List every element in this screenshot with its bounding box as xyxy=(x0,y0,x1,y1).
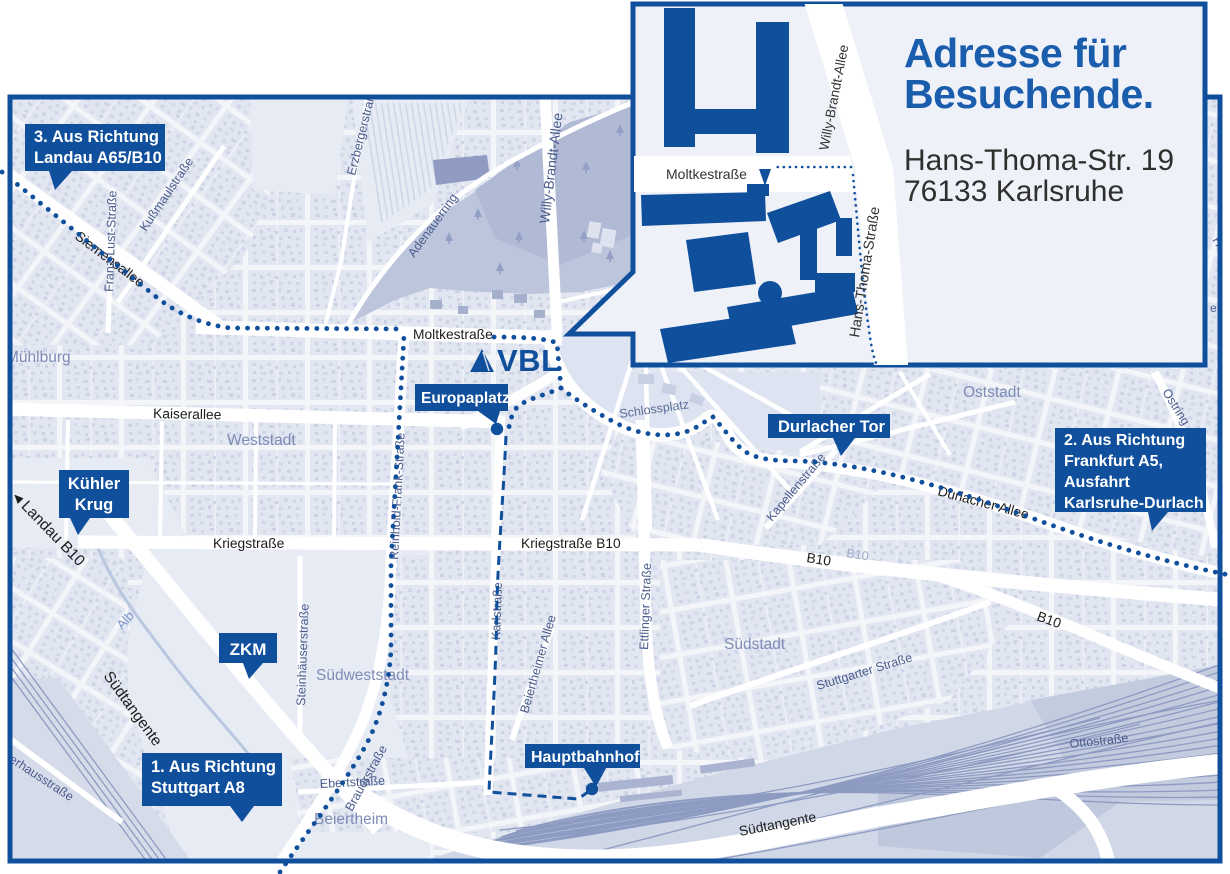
svg-text:Europaplatz: Europaplatz xyxy=(421,390,510,407)
svg-text:Weststadt: Weststadt xyxy=(227,432,296,449)
svg-text:Hauptbahnhof: Hauptbahnhof xyxy=(531,749,640,766)
svg-text:VBL: VBL xyxy=(497,343,561,378)
svg-text:Moltkestraße: Moltkestraße xyxy=(413,327,493,342)
svg-text:Mühlburg: Mühlburg xyxy=(6,349,71,366)
svg-text:ZKM: ZKM xyxy=(230,640,267,659)
svg-text:2. Aus Richtung: 2. Aus Richtung xyxy=(1064,432,1185,449)
svg-text:Moltkestraße: Moltkestraße xyxy=(666,166,747,182)
svg-text:1. Aus Richtung: 1. Aus Richtung xyxy=(151,758,276,776)
svg-text:Südstadt: Südstadt xyxy=(724,636,786,653)
svg-text:Stuttgart A8: Stuttgart A8 xyxy=(151,779,245,797)
svg-text:Ausfahrt: Ausfahrt xyxy=(1064,474,1130,491)
svg-text:Adresse für: Adresse für xyxy=(904,30,1127,76)
svg-text:Landau A65/B10: Landau A65/B10 xyxy=(34,149,162,167)
svg-text:3. Aus Richtung: 3. Aus Richtung xyxy=(34,128,159,146)
svg-text:Durlacher Tor: Durlacher Tor xyxy=(778,418,886,436)
svg-text:Frankfurt A5,: Frankfurt A5, xyxy=(1064,453,1163,470)
svg-text:Krug: Krug xyxy=(75,496,114,514)
svg-text:Kriegstraße B10: Kriegstraße B10 xyxy=(521,536,621,551)
svg-text:Kaiserallee: Kaiserallee xyxy=(153,406,222,422)
svg-text:Beiertheim: Beiertheim xyxy=(314,811,388,828)
svg-text:Hans-Thoma-Str. 19: Hans-Thoma-Str. 19 xyxy=(904,144,1174,177)
svg-text:Besuchende.: Besuchende. xyxy=(904,71,1154,117)
svg-text:Oststadt: Oststadt xyxy=(963,384,1021,401)
svg-text:Kühler: Kühler xyxy=(68,475,121,493)
svg-text:Südweststadt: Südweststadt xyxy=(316,667,410,684)
svg-text:Karlsruhe-Durlach: Karlsruhe-Durlach xyxy=(1064,495,1204,512)
svg-text:76133 Karlsruhe: 76133 Karlsruhe xyxy=(904,175,1124,208)
svg-text:Kriegstraße: Kriegstraße xyxy=(213,536,285,551)
